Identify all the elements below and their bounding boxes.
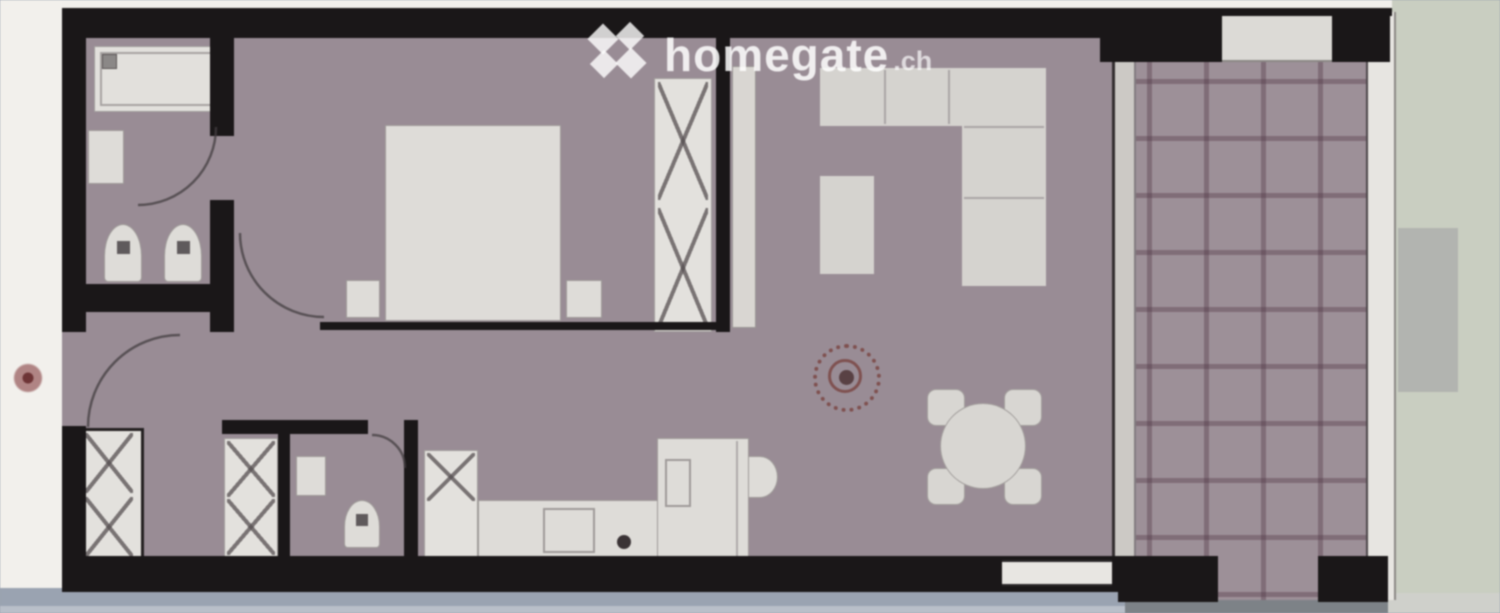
wc-top-wall: [222, 420, 368, 434]
red-stamp-mark: [813, 344, 881, 412]
closet-x-panel: [227, 499, 275, 555]
outside-bottom-right-band: [1388, 593, 1500, 613]
corner-sofa-right-section: [962, 68, 1046, 286]
toilet-cistern: [356, 514, 368, 526]
wc-door-arc: [368, 432, 408, 472]
bedroom-bottom-wall: [320, 322, 730, 330]
left-exterior-wall-upper: [62, 8, 86, 332]
watermark-brand-text: homegate: [664, 34, 889, 78]
homegate-x-logo-icon: [590, 26, 648, 78]
living-terrace-window-wall: [1112, 60, 1136, 558]
outside-left-area: [0, 0, 62, 613]
island-sink: [665, 459, 691, 507]
closet-x-panel: [85, 433, 133, 493]
terrace-pillar-left: [1100, 8, 1222, 62]
bidet-fixture: [177, 241, 190, 254]
kitchen-cooktop-knob: [617, 535, 631, 549]
bathroom-bottom-wall: [84, 284, 234, 312]
nightstand-right: [566, 280, 602, 318]
logo-diamond: [616, 22, 644, 50]
bathroom-right-wall-lower: [210, 200, 234, 332]
bathroom-toilet: [104, 224, 142, 282]
island-seam: [736, 441, 738, 559]
wc-divider-wall: [278, 434, 290, 558]
armchair: [820, 176, 874, 274]
closet-x-panel: [85, 497, 133, 557]
wc-closet: [224, 438, 278, 558]
bathtub-faucet: [102, 54, 117, 69]
cabinet-x-panel: [427, 453, 475, 501]
toilet-cistern: [117, 241, 130, 254]
entry-door-arc: [86, 333, 182, 429]
logo-diamond: [615, 47, 646, 78]
closet-x-panel: [227, 441, 275, 497]
wardrobe-x-panel: [658, 82, 708, 200]
sofa-seam: [948, 70, 950, 124]
bottom-wall-window: [1002, 560, 1112, 586]
stamp-center-dot: [839, 370, 854, 385]
hall-closet: [80, 428, 144, 568]
watermark: homegate .ch: [590, 26, 932, 78]
bathroom-bidet: [164, 224, 202, 282]
wardrobe-x-panel: [658, 208, 708, 328]
round-dining-table: [940, 403, 1026, 489]
outside-bottom-band-edge: [0, 606, 1125, 613]
sofa-seam: [964, 126, 1044, 128]
wall-shelf-strip: [732, 66, 756, 328]
nightstand-left: [346, 280, 380, 318]
bathroom-door-arc: [136, 125, 220, 209]
bathroom-right-wall-upper: [210, 36, 234, 136]
bottom-exterior-wall: [62, 556, 1130, 592]
floorplan-image: homegate .ch: [0, 0, 1500, 613]
bathroom-washbasin: [88, 130, 124, 184]
terrace-bottom-wall-right: [1318, 556, 1388, 602]
bedroom-door-arc: [238, 231, 326, 319]
terrace-top-opening: [1222, 16, 1332, 62]
kitchen-sink: [543, 508, 595, 553]
terrace-railing: [1366, 12, 1396, 600]
terrace-pillar-right: [1332, 8, 1390, 62]
wc-toilet: [344, 500, 380, 548]
kitchen-island: [657, 438, 749, 562]
bathtub: [94, 46, 218, 112]
terrace-tiled-floor: [1125, 8, 1370, 602]
kitchen-tall-cabinet: [424, 450, 478, 562]
logo-diamond: [590, 50, 618, 78]
bedroom-wardrobe: [654, 78, 712, 332]
wc-washbasin: [296, 456, 326, 496]
watermark-tld-text: .ch: [893, 48, 932, 78]
sofa-seam: [964, 197, 1044, 199]
entry-red-dot: [12, 362, 44, 394]
outside-grey-box: [1398, 228, 1458, 392]
double-bed: [385, 125, 561, 321]
kitchen-counter: [478, 500, 658, 562]
terrace-bottom-wall-left: [1118, 556, 1218, 602]
